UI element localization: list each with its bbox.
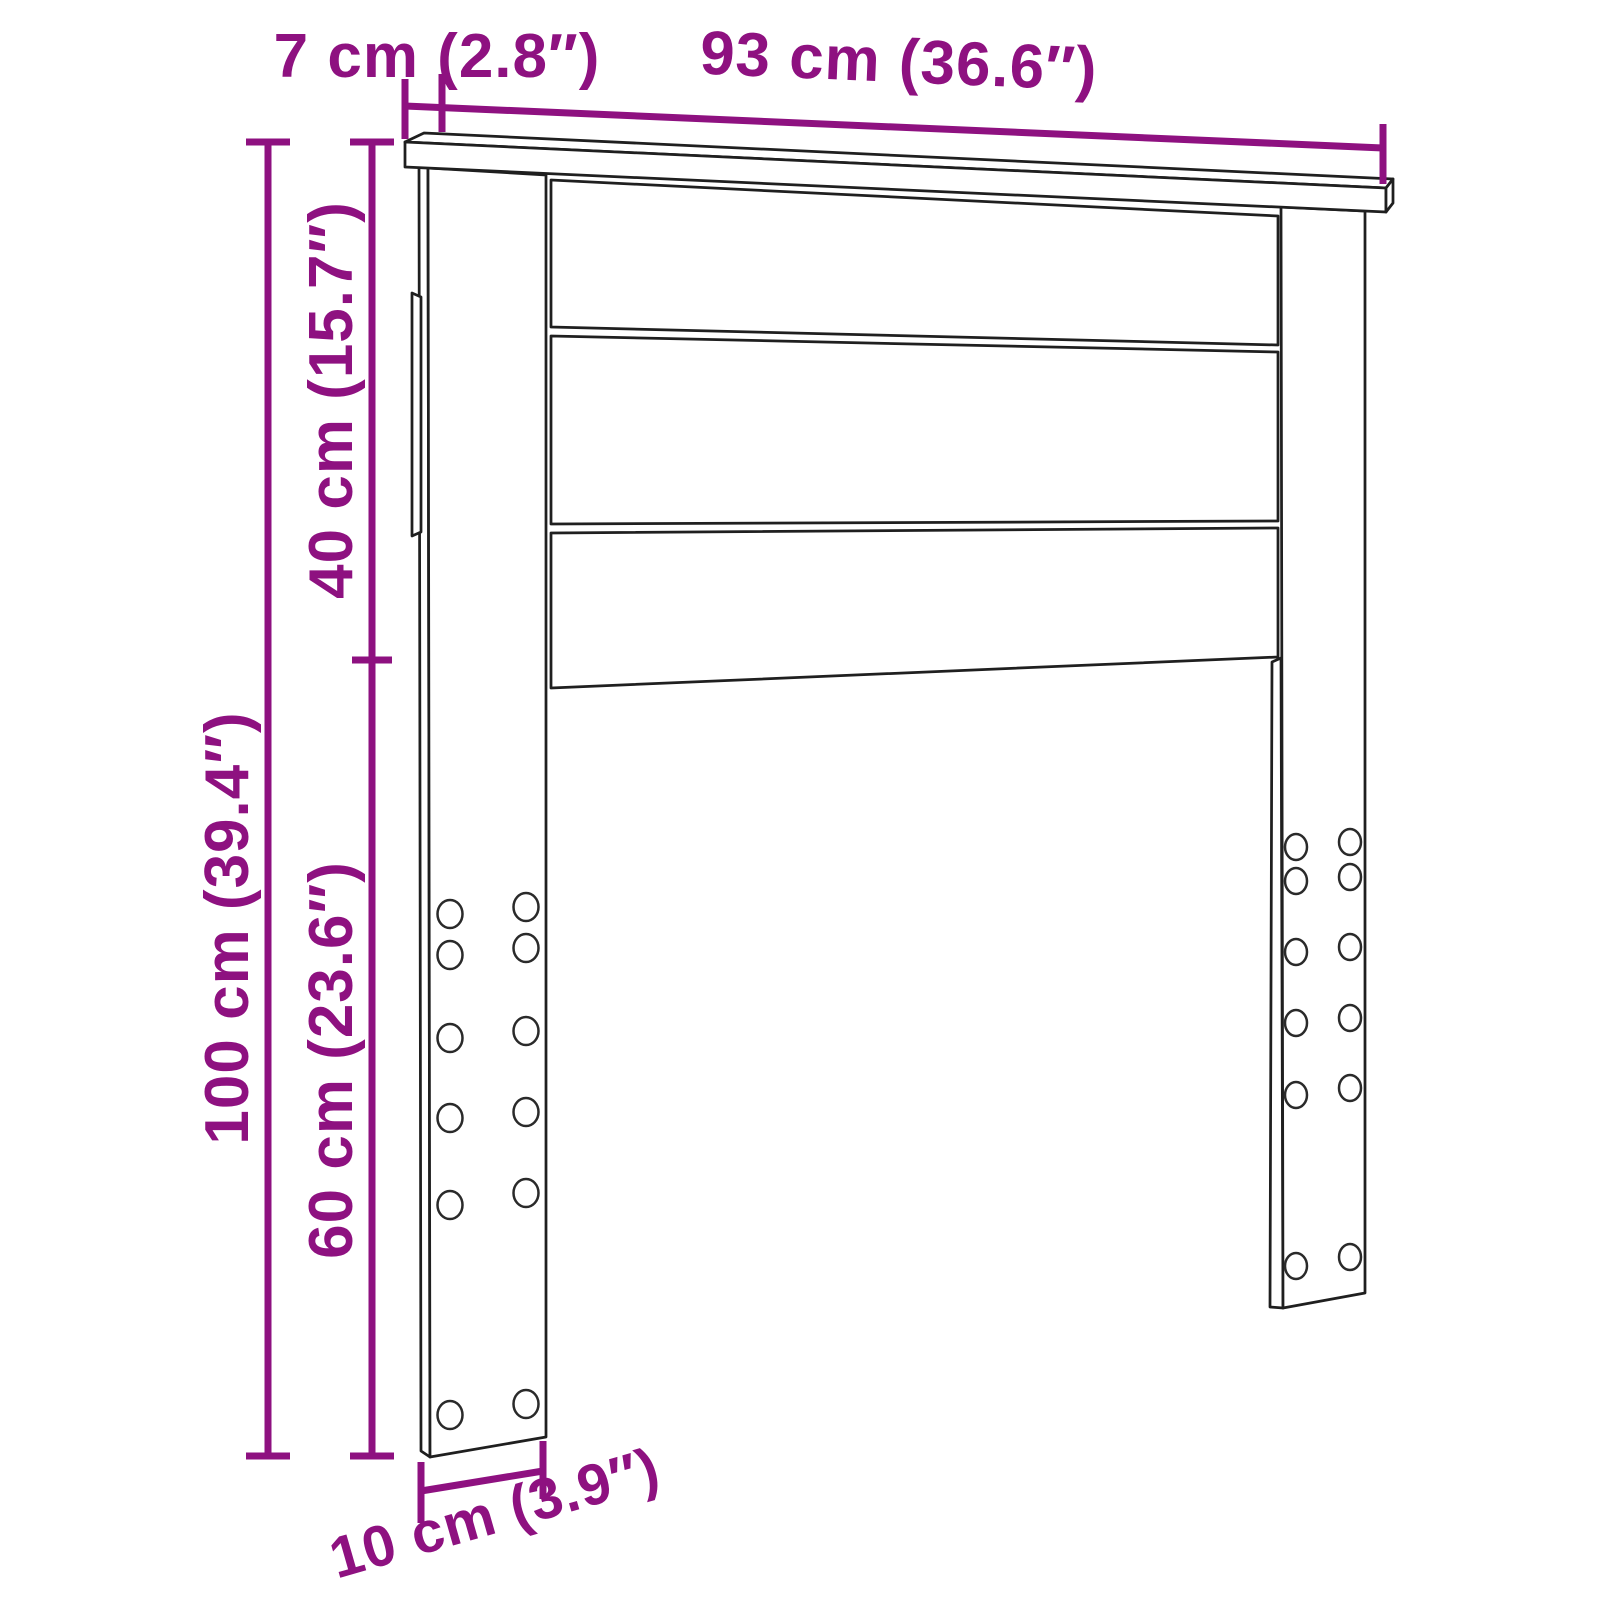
screw-hole [1339, 1244, 1361, 1270]
screw-hole [1339, 934, 1361, 960]
dimension-diagram: 7 cm (2.8″) 93 cm (36.6″) 100 cm (39.4″)… [0, 0, 1600, 1600]
screw-hole [1339, 1075, 1361, 1101]
screw-hole [1285, 1010, 1307, 1036]
screw-hole [514, 1179, 539, 1207]
screw-hole [438, 1191, 463, 1219]
right-post-front-face [1281, 207, 1365, 1308]
screw-hole [514, 1017, 539, 1045]
screw-hole [438, 1104, 463, 1132]
screw-hole [438, 941, 463, 969]
screw-hole [438, 1024, 463, 1052]
diagram-canvas: 7 cm (2.8″) 93 cm (36.6″) 100 cm (39.4″)… [0, 0, 1600, 1600]
screw-hole [1339, 864, 1361, 890]
left-post [412, 164, 546, 1457]
screw-hole [1285, 868, 1307, 894]
slat-bottom [551, 528, 1278, 688]
label-total-height: 100 cm (39.4″) [193, 711, 262, 1144]
headboard-line-art [405, 133, 1393, 1457]
right-post [1270, 207, 1365, 1308]
screw-hole [1285, 1253, 1307, 1279]
screw-hole [438, 1401, 463, 1429]
wall-bracket [412, 293, 421, 536]
headboard-slats [551, 180, 1278, 688]
screw-hole [514, 934, 539, 962]
screw-hole [1285, 939, 1307, 965]
label-top-width: 93 cm (36.6″) [699, 19, 1099, 105]
screw-hole [514, 893, 539, 921]
left-post-front-face [428, 168, 546, 1457]
label-top-depth: 7 cm (2.8″) [274, 22, 601, 91]
slat-middle [551, 336, 1278, 524]
screw-hole [1285, 834, 1307, 860]
screw-hole [1339, 829, 1361, 855]
slat-top [551, 180, 1278, 345]
label-leg-height: 60 cm (23.6″) [297, 861, 366, 1259]
screw-hole [514, 1390, 539, 1418]
screw-hole [514, 1098, 539, 1126]
screw-hole [1285, 1082, 1307, 1108]
screw-hole [1339, 1005, 1361, 1031]
screw-hole [438, 900, 463, 928]
label-panel-height: 40 cm (15.7″) [297, 201, 366, 599]
